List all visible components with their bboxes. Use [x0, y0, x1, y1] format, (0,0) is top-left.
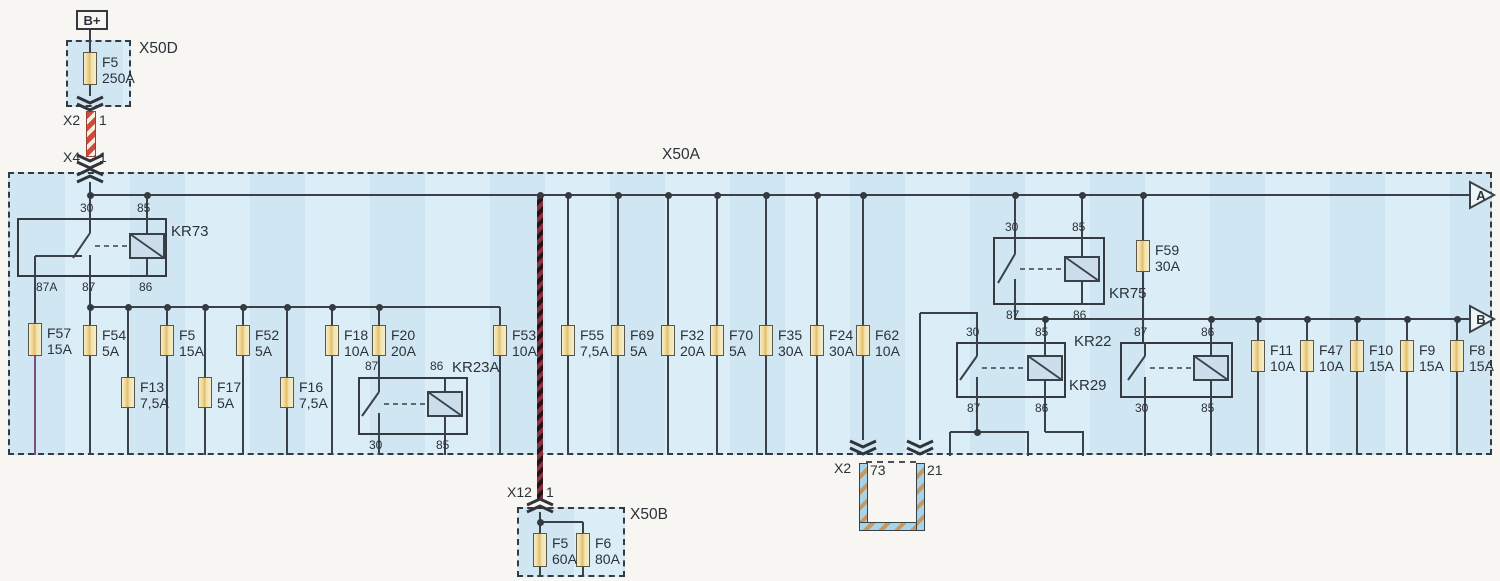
jumper-wire-x2-loop — [859, 463, 868, 531]
wire-segment — [617, 195, 619, 325]
fuse-f57-label: F57 — [47, 326, 71, 340]
wire-segment — [242, 356, 244, 455]
relay-kr23a-label: KR23A — [452, 360, 500, 375]
fuse-f11-body — [1251, 340, 1265, 372]
fuse-f11-label: F11 — [1270, 343, 1293, 357]
wire-segment — [920, 312, 978, 314]
wire-segment — [540, 521, 583, 523]
junction-dot — [1208, 316, 1215, 323]
wire-segment — [499, 307, 501, 325]
fuse-f35-amps: 30A — [778, 344, 803, 358]
relay-kr22-pin-87: 87 — [1134, 326, 1147, 338]
fuse-f17-label: F17 — [217, 380, 241, 394]
fuse-f18-amps: 10A — [344, 344, 369, 358]
wire-segment — [567, 356, 569, 455]
junction-dot — [144, 192, 151, 199]
fuse-f47-label: F47 — [1319, 343, 1343, 357]
fuse-f20-amps: 20A — [391, 344, 416, 358]
junction-dot — [1140, 192, 1147, 199]
relay-kr29-pin-30: 30 — [966, 326, 979, 338]
relay-kr22-pin-85: 85 — [1201, 402, 1214, 414]
relay-kr73-box — [17, 218, 167, 277]
fuse-f53-label: F53 — [512, 328, 536, 342]
fuse-f35-label: F35 — [778, 328, 802, 342]
fuse-f5-250a-amps: 250A — [102, 71, 135, 85]
fuse-f18-label: F18 — [344, 328, 368, 342]
relay-kr29-pin-87: 87 — [967, 402, 980, 414]
fuse-f13-amps: 7,5A — [140, 396, 169, 410]
wire-segment — [35, 255, 82, 257]
fuse-f54-amps: 5A — [102, 344, 119, 358]
wire-segment — [816, 195, 818, 325]
fuse-f9-label: F9 — [1419, 343, 1435, 357]
wire-segment — [582, 522, 584, 533]
fuse-f5-60a-amps: 60A — [552, 552, 577, 566]
wire-segment — [90, 306, 500, 308]
wire-segment — [765, 195, 767, 325]
relay-kr29-label: KR29 — [1069, 378, 1107, 393]
fuse-f10-amps: 15A — [1369, 359, 1394, 373]
fuse-f24-amps: 30A — [829, 344, 854, 358]
fuse-f53-amps: 10A — [512, 344, 537, 358]
fuse-f59-label: F59 — [1155, 243, 1179, 257]
relay-kr73-label: KR73 — [171, 224, 209, 239]
fuse-f9-amps: 15A — [1419, 359, 1444, 373]
relay-kr75-pin-30: 30 — [1005, 221, 1018, 233]
junction-dot — [1012, 192, 1019, 199]
arrow-a-letter: A — [1470, 189, 1492, 202]
x4-label: X4 — [63, 150, 80, 164]
fuse-f16-amps: 7,5A — [299, 396, 328, 410]
wire-segment — [286, 408, 288, 455]
wire-segment — [1406, 372, 1408, 455]
fuse-f18-body — [325, 325, 339, 356]
junction-dot — [376, 304, 383, 311]
wire-segment — [86, 111, 96, 157]
relay-kr75-box — [993, 237, 1105, 305]
fuse-f59-amps: 30A — [1155, 259, 1180, 273]
junction-dot — [164, 304, 171, 311]
junction-dot — [974, 429, 981, 436]
fuse-f20-label: F20 — [391, 328, 415, 342]
fuse-f32-body — [661, 325, 675, 356]
fuse-f5-amps: 15A — [179, 344, 204, 358]
wire-segment — [286, 307, 288, 377]
wire-segment — [919, 313, 921, 440]
junction-dot — [860, 192, 867, 199]
fuse-f10-body — [1350, 340, 1364, 372]
wire-segment — [1306, 372, 1308, 455]
relay-kr22-pin-86: 86 — [1201, 326, 1214, 338]
wire-segment — [539, 567, 541, 577]
fuse-f6-80a-label: F6 — [595, 536, 611, 550]
relay-kr73-pin-85: 85 — [137, 202, 150, 214]
x2-top-label: X2 — [63, 113, 80, 127]
junction-dot — [1042, 316, 1049, 323]
fuse-f8-body — [1450, 340, 1464, 372]
junction-dot — [615, 192, 622, 199]
x50b-label: X50B — [630, 507, 668, 522]
wire-segment — [1142, 195, 1144, 240]
fuse-f13-body — [121, 377, 135, 408]
junction-dot — [202, 304, 209, 311]
wire-segment — [34, 356, 36, 455]
fuse-f6-80a-amps: 80A — [595, 552, 620, 566]
fuse-f17-amps: 5A — [217, 396, 234, 410]
wire-segment — [1045, 431, 1084, 433]
relay-kr22-label: KR22 — [1074, 334, 1112, 349]
junction-dot — [87, 304, 94, 311]
wire-segment — [949, 432, 951, 456]
wire-segment — [862, 356, 864, 440]
wire-segment — [127, 408, 129, 455]
relay-kr75-label: KR75 — [1109, 286, 1147, 301]
fuse-f5-250a-label: F5 — [102, 55, 118, 69]
x2-bottom-label: X2 — [834, 461, 851, 475]
wire-segment — [667, 356, 669, 455]
wire-segment — [89, 194, 1471, 196]
wire-segment — [89, 30, 91, 52]
junction-dot — [1454, 316, 1461, 323]
wire-segment — [582, 567, 584, 577]
fuse-f55-amps: 7,5A — [580, 344, 609, 358]
junction-dot — [1304, 316, 1311, 323]
fuse-f53-body — [493, 325, 507, 356]
fuse-f70-body — [710, 325, 724, 356]
fuse-f16-label: F16 — [299, 380, 323, 394]
wire-segment — [89, 356, 91, 455]
arrow-b-letter: B — [1470, 313, 1492, 326]
fuse-f55-label: F55 — [580, 328, 604, 342]
junction-dot — [537, 192, 544, 199]
relay-kr75-pin-86: 86 — [1073, 309, 1086, 321]
fuse-f5-60a-label: F5 — [552, 536, 568, 550]
fuse-f20-body — [372, 325, 386, 356]
relay-kr23a-pin-87: 87 — [365, 360, 378, 372]
relay-kr73-pin-86: 86 — [139, 281, 152, 293]
fuse-f62-amps: 10A — [875, 344, 900, 358]
wire-segment — [89, 85, 91, 96]
relay-kr73-pin-87: 87 — [82, 281, 95, 293]
wire-segment — [204, 307, 206, 377]
fuse-f10-label: F10 — [1369, 343, 1393, 357]
junction-dot — [240, 304, 247, 311]
fuse-f70-amps: 5A — [729, 344, 746, 358]
wire-segment — [331, 356, 333, 455]
junction-dot — [537, 519, 544, 526]
wire-segment — [34, 256, 36, 277]
fuse-f52-body — [236, 325, 250, 356]
fuse-f32-amps: 20A — [680, 344, 705, 358]
fuse-f24-body — [810, 325, 824, 356]
x50a-box — [8, 172, 1492, 455]
x2-top-pin: 1 — [99, 113, 107, 127]
wire-segment — [667, 195, 669, 325]
wire-segment — [1356, 372, 1358, 455]
fuse-f62-label: F62 — [875, 328, 899, 342]
fuse-f13-label: F13 — [140, 380, 164, 394]
junction-dot — [665, 192, 672, 199]
fuse-f17-body — [198, 377, 212, 408]
fuse-f69-label: F69 — [630, 328, 654, 342]
wire-segment — [716, 356, 718, 455]
fuse-f5-label: F5 — [179, 328, 195, 342]
relay-kr22-box — [1120, 342, 1233, 398]
wire-segment — [1456, 372, 1458, 455]
junction-dot — [284, 304, 291, 311]
x2-pin-21: 21 — [927, 463, 943, 477]
wire-segment — [127, 307, 129, 377]
fuse-f8-label: F8 — [1469, 343, 1485, 357]
relay-kr73-pin-30: 30 — [80, 202, 93, 214]
wire-segment — [862, 195, 864, 325]
wire-segment — [950, 431, 1029, 433]
wire-segment — [567, 195, 569, 325]
wire-segment — [816, 356, 818, 455]
fuse-f47-body — [1300, 340, 1314, 372]
relay-kr75-pin-85: 85 — [1072, 221, 1085, 233]
wire-segment — [617, 356, 619, 455]
fuse-f69-amps: 5A — [630, 344, 647, 358]
fuse-f55-body — [561, 325, 575, 356]
junction-dot — [329, 304, 336, 311]
fuse-f59-body — [1136, 240, 1150, 272]
junction-dot — [125, 304, 132, 311]
fuse-f57-amps: 15A — [47, 342, 72, 356]
wire-segment — [1257, 372, 1259, 455]
junction-dot — [87, 192, 94, 199]
fuse-f47-amps: 10A — [1319, 359, 1344, 373]
x50d-label: X50D — [139, 41, 178, 56]
relay-kr23a-pin-30: 30 — [369, 439, 382, 451]
wire-segment — [204, 408, 206, 455]
relay-kr23a-box — [358, 377, 468, 435]
fuse-f8-amps: 15A — [1469, 359, 1494, 373]
junction-dot — [1079, 192, 1086, 199]
fuse-f35-body — [759, 325, 773, 356]
fuse-f57-body — [28, 323, 42, 356]
fuse-f5-body — [160, 325, 174, 356]
relay-kr23a-pin-85: 85 — [436, 439, 449, 451]
x4-pin: 1 — [99, 150, 107, 164]
x50a-label: X50A — [662, 147, 700, 162]
x2-pin-73: 73 — [870, 463, 886, 477]
relay-kr29-box — [956, 342, 1066, 398]
fuse-f52-label: F52 — [255, 328, 279, 342]
junction-dot — [565, 192, 572, 199]
wire-segment — [1082, 432, 1084, 456]
fuse-f9-body — [1400, 340, 1414, 372]
junction-dot — [814, 192, 821, 199]
fuse-f11-amps: 10A — [1270, 359, 1295, 373]
wire-segment — [765, 356, 767, 455]
fuse-f16-body — [280, 377, 294, 408]
relay-kr22-pin-30: 30 — [1135, 402, 1148, 414]
x12-pin: 1 — [546, 485, 554, 499]
battery-terminal-bplus: B+ — [76, 10, 108, 30]
x12-label: X12 — [507, 485, 532, 499]
fuse-f62-body — [856, 325, 870, 356]
relay-kr75-pin-87: 87 — [1006, 309, 1019, 321]
junction-dot — [763, 192, 770, 199]
relay-kr29-pin-86: 86 — [1035, 402, 1048, 414]
wiring-diagram-canvas: B+ F5250AF5715AF545AF137,5AF515AF175AF52… — [0, 0, 1500, 581]
fuse-f70-label: F70 — [729, 328, 753, 342]
junction-dot — [1255, 316, 1262, 323]
fuse-f24-label: F24 — [829, 328, 853, 342]
junction-dot — [1354, 316, 1361, 323]
wire-segment — [716, 195, 718, 325]
fuse-f52-amps: 5A — [255, 344, 272, 358]
fuse-f54-label: F54 — [102, 328, 126, 342]
wire-segment — [537, 195, 543, 500]
wire-segment — [1027, 432, 1029, 456]
fuse-f69-body — [611, 325, 625, 356]
fuse-f5-60a-body — [533, 533, 547, 567]
relay-kr23a-pin-86: 86 — [430, 360, 443, 372]
fuse-f6-80a-body — [576, 533, 590, 567]
junction-dot — [1404, 316, 1411, 323]
relay-kr73-pin-87A: 87A — [36, 281, 57, 293]
junction-dot — [714, 192, 721, 199]
jumper-wire-x2-loop — [916, 463, 925, 531]
fuse-f54-body — [83, 325, 97, 356]
fuse-f5-250a-body — [83, 52, 97, 85]
fuse-f32-label: F32 — [680, 328, 704, 342]
relay-kr29-pin-85: 85 — [1035, 326, 1048, 338]
